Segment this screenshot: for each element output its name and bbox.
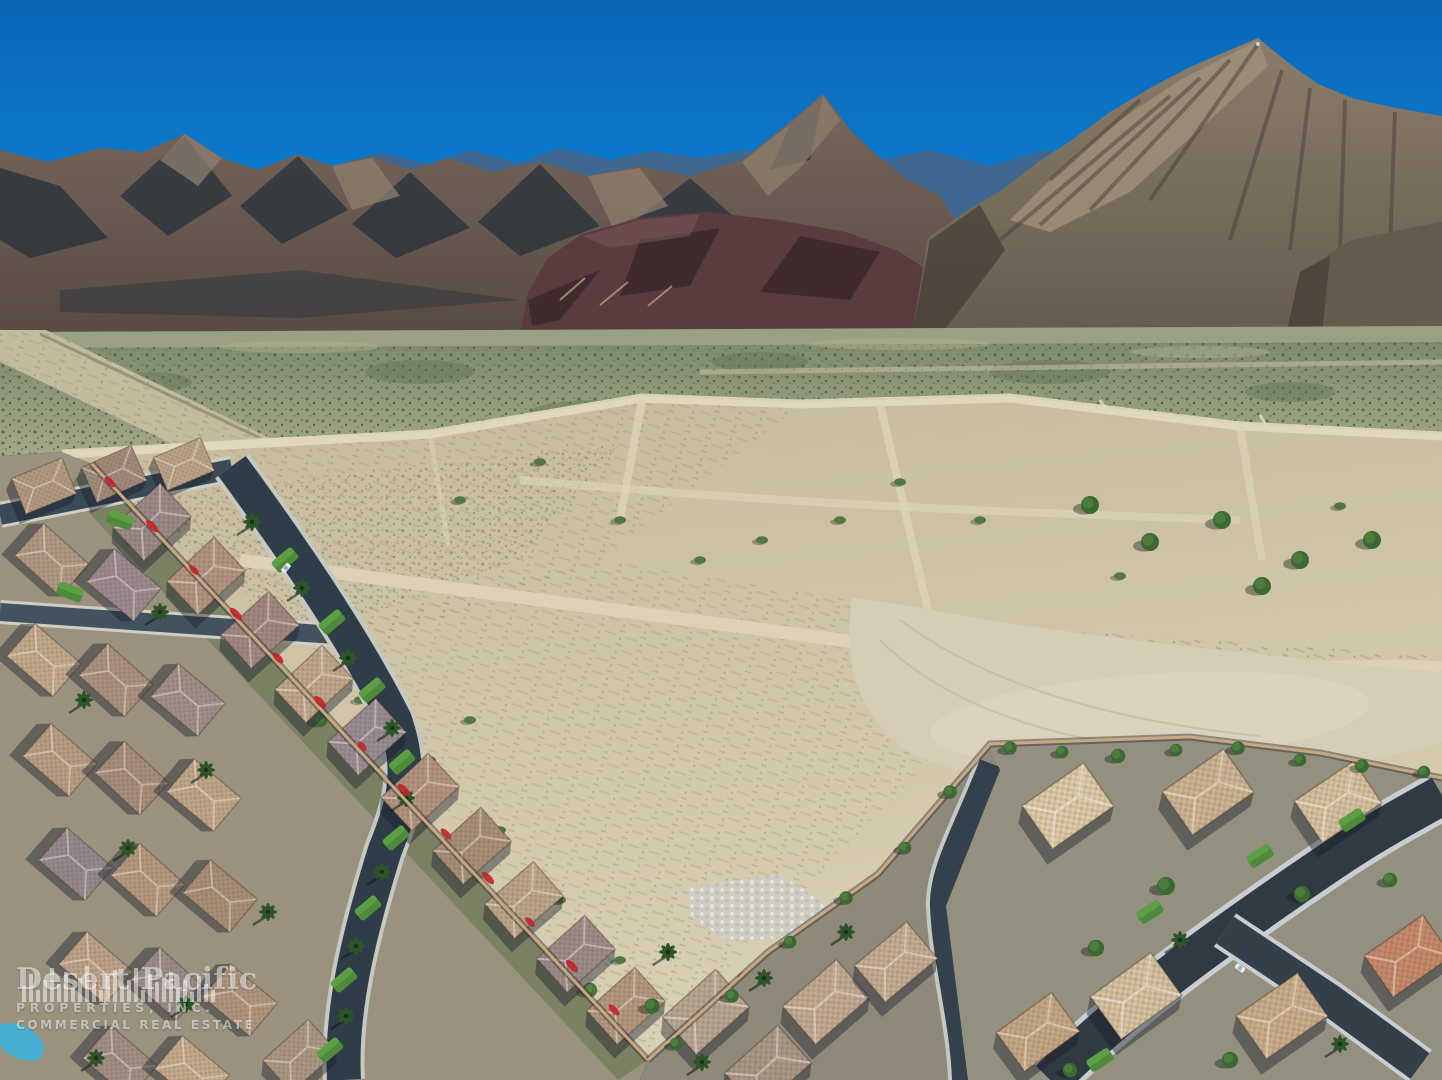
aerial-photo: Desert Pacific PROPERTIES, INC. COMMERCI… bbox=[0, 0, 1442, 1080]
right-neighborhood bbox=[946, 737, 1442, 1080]
watermark: Desert Pacific PROPERTIES, INC. COMMERCI… bbox=[16, 964, 246, 1032]
brand-company-type: PROPERTIES, INC. bbox=[16, 1000, 246, 1015]
scene bbox=[0, 0, 1442, 1080]
city-skyline-bars-icon bbox=[22, 964, 218, 1002]
brand-tagline: COMMERCIAL REAL ESTATE bbox=[16, 1018, 246, 1032]
